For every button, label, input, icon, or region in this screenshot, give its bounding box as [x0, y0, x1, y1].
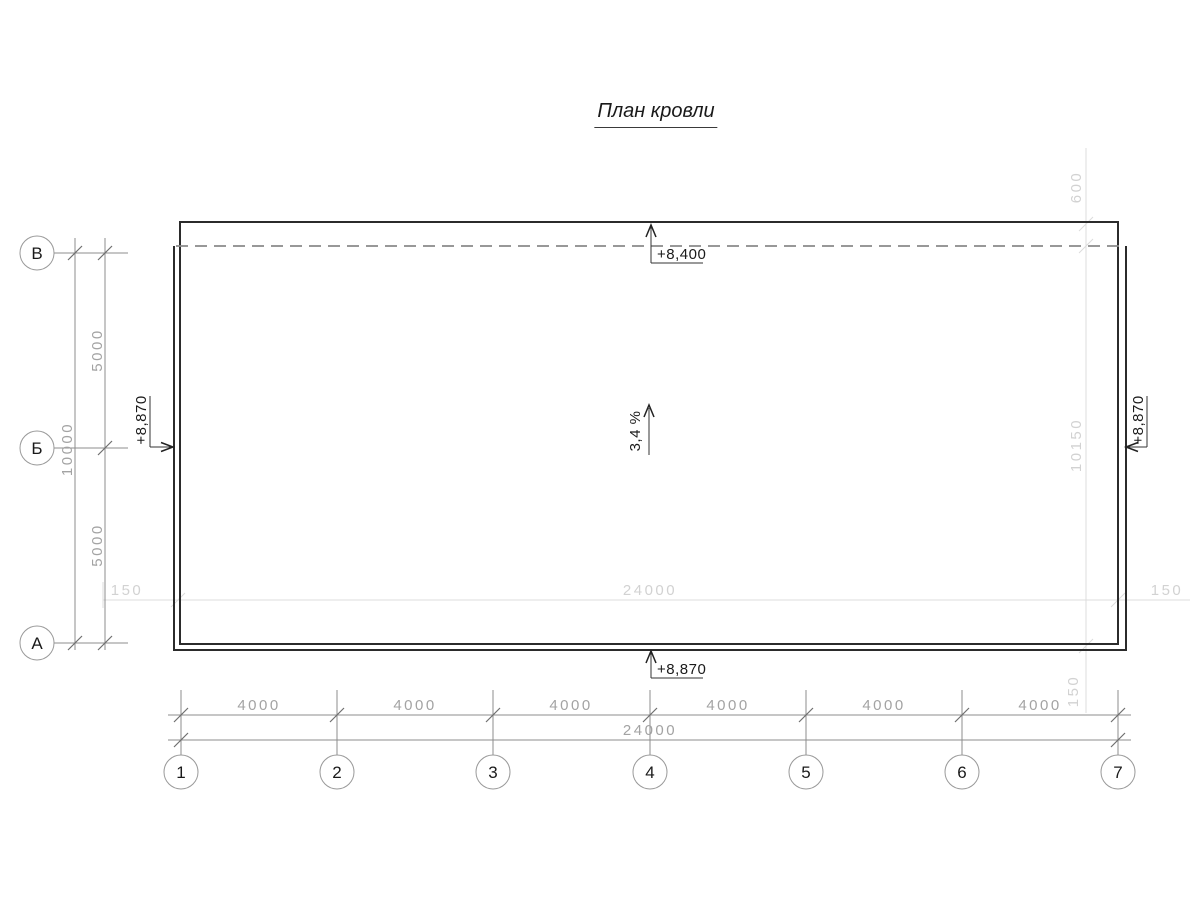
elevation-right-value: +8,870: [1130, 395, 1147, 444]
left-dim-segment-2: 5000: [89, 523, 106, 566]
bay-dim-4: 4000: [706, 697, 749, 714]
bay-dim-6: 4000: [1018, 697, 1061, 714]
axis-label-6: 6: [957, 763, 966, 782]
axis-label-3: 3: [488, 763, 497, 782]
elevation-mark-bottom: +8,870: [646, 651, 706, 678]
axis-label-v: В: [31, 244, 42, 263]
elevation-left-value: +8,870: [133, 395, 150, 444]
slope-value: 3,4 %: [627, 411, 644, 452]
left-dim-total: 10000: [59, 422, 76, 476]
axis-label-2: 2: [332, 763, 341, 782]
plan-linework: 150 24000 150 600 10150 150 5000 5000 10…: [0, 0, 1200, 900]
overlay-dim-wall-total: 24000: [623, 582, 677, 599]
row-axis-bubbles: 1 2 3 4 5 6 7: [164, 755, 1135, 789]
bay-dim-2: 4000: [393, 697, 436, 714]
overlay-dimension-lines: [103, 148, 1190, 713]
overlay-dim-parapet: 150: [1065, 675, 1082, 708]
overlay-dim-wall-left: 150: [111, 582, 144, 599]
roof-plan-drawing: План кровли 150 24000 150 600 10150 150: [0, 0, 1200, 900]
axis-label-1: 1: [176, 763, 185, 782]
total-width-dim: 24000: [623, 722, 677, 739]
bay-dim-5: 4000: [862, 697, 905, 714]
elevation-mark-top: +8,400: [646, 225, 706, 263]
axis-label-b: Б: [31, 439, 42, 458]
overlay-dim-top-offset: 600: [1068, 171, 1085, 204]
axis-label-7: 7: [1113, 763, 1122, 782]
axis-label-4: 4: [645, 763, 654, 782]
axis-label-5: 5: [801, 763, 810, 782]
overlay-dimension-labels: 150 24000 150 600 10150 150: [111, 171, 1184, 708]
axis-label-a: А: [31, 634, 43, 653]
slope-annotation: 3,4 %: [627, 405, 654, 455]
elevation-mark-left: +8,870: [133, 395, 173, 451]
bay-dim-3: 4000: [549, 697, 592, 714]
column-axis-bubbles: В Б А: [20, 236, 54, 660]
elevation-top-value: +8,400: [657, 246, 706, 263]
left-dim-segment-1: 5000: [89, 328, 106, 371]
overlay-dim-right-height: 10150: [1068, 418, 1085, 472]
elevation-bottom-value: +8,870: [657, 661, 706, 678]
elevation-mark-right: +8,870: [1126, 395, 1147, 451]
overlay-dim-wall-right: 150: [1151, 582, 1184, 599]
bay-dim-1: 4000: [237, 697, 280, 714]
